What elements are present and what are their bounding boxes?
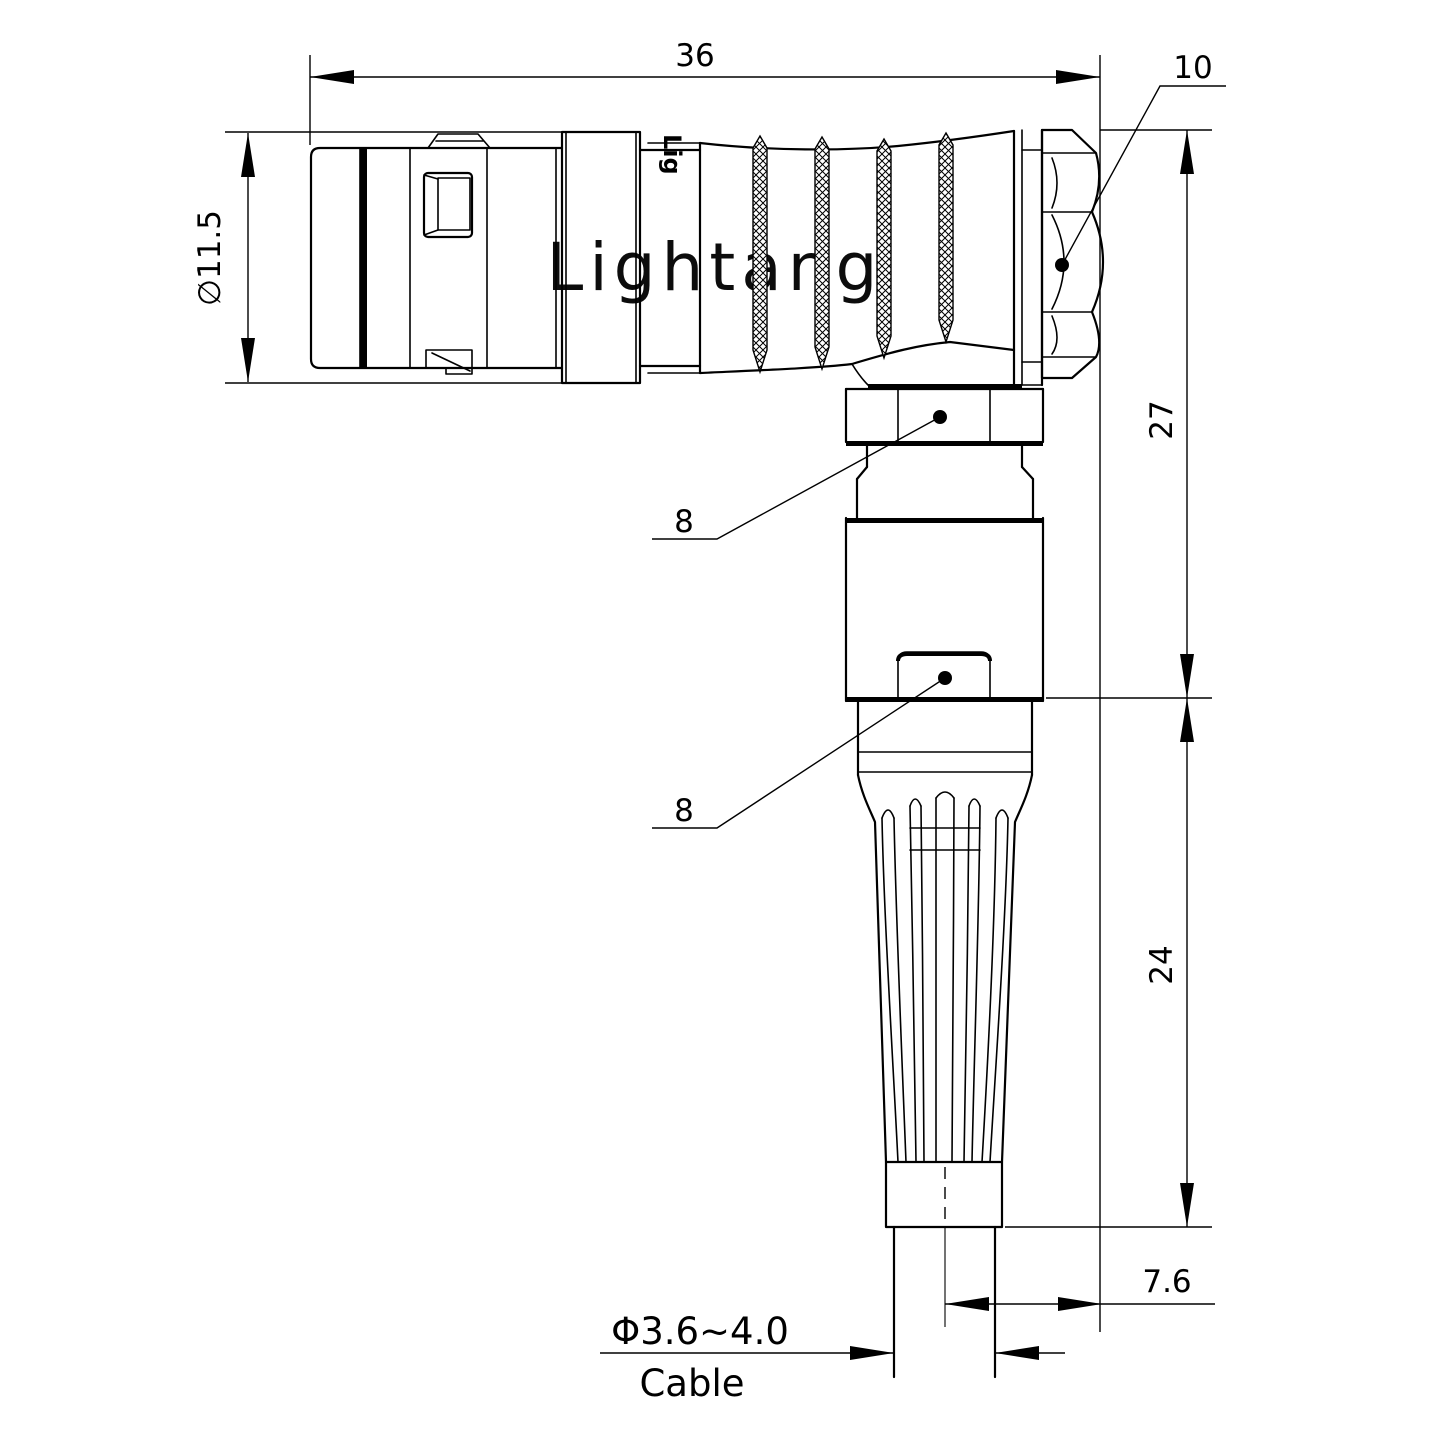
plug-front-sleeve bbox=[311, 134, 562, 374]
knurl-band-4 bbox=[939, 133, 953, 342]
dim-27-label: 27 bbox=[1144, 400, 1180, 439]
watermark: Lightang Lig bbox=[547, 134, 884, 306]
watermark-text: Lightang bbox=[547, 229, 884, 306]
dimension-elbow-height: 27 24 bbox=[1005, 130, 1212, 1227]
technical-drawing-page: Lightang Lig bbox=[0, 0, 1440, 1440]
strain-relief bbox=[858, 702, 1032, 1227]
watermark-partial-text: Lig bbox=[658, 134, 686, 175]
label-8-upper: 8 bbox=[674, 504, 694, 540]
coupling-nut bbox=[1042, 130, 1103, 378]
dimension-coupling-diameter: ∅11.5 bbox=[192, 132, 562, 383]
strain-relief-ribs bbox=[882, 792, 1008, 1162]
knurl-band-1 bbox=[753, 136, 767, 372]
dimension-boss-leader: 8 bbox=[652, 671, 952, 829]
dim-d11-5-label: ∅11.5 bbox=[192, 210, 228, 306]
dim-24-label: 24 bbox=[1144, 945, 1180, 984]
latch-window bbox=[424, 173, 472, 237]
label-8-lower: 8 bbox=[674, 793, 694, 829]
knurl-band-3 bbox=[877, 139, 891, 358]
dim-7-6-label: 7.6 bbox=[1142, 1264, 1191, 1300]
dim-10-label: 10 bbox=[1173, 50, 1212, 86]
dimension-cable-offset: 7.6 bbox=[945, 1264, 1215, 1311]
connector-drawing-svg: Lightang Lig bbox=[0, 0, 1440, 1440]
dim-36-label: 36 bbox=[675, 38, 714, 74]
elbow-vertical-body bbox=[846, 384, 1043, 702]
latch-cut bbox=[426, 350, 472, 374]
dimension-nut-leader: 10 bbox=[1055, 50, 1226, 272]
sleeve-band bbox=[360, 148, 367, 368]
elbow-collar bbox=[1014, 130, 1042, 385]
cable-word-label: Cable bbox=[639, 1362, 744, 1405]
ferrule bbox=[886, 1162, 1002, 1227]
cable-diameter-label: Φ3.6~4.0 bbox=[611, 1310, 789, 1353]
knurl-band-2 bbox=[815, 137, 829, 369]
